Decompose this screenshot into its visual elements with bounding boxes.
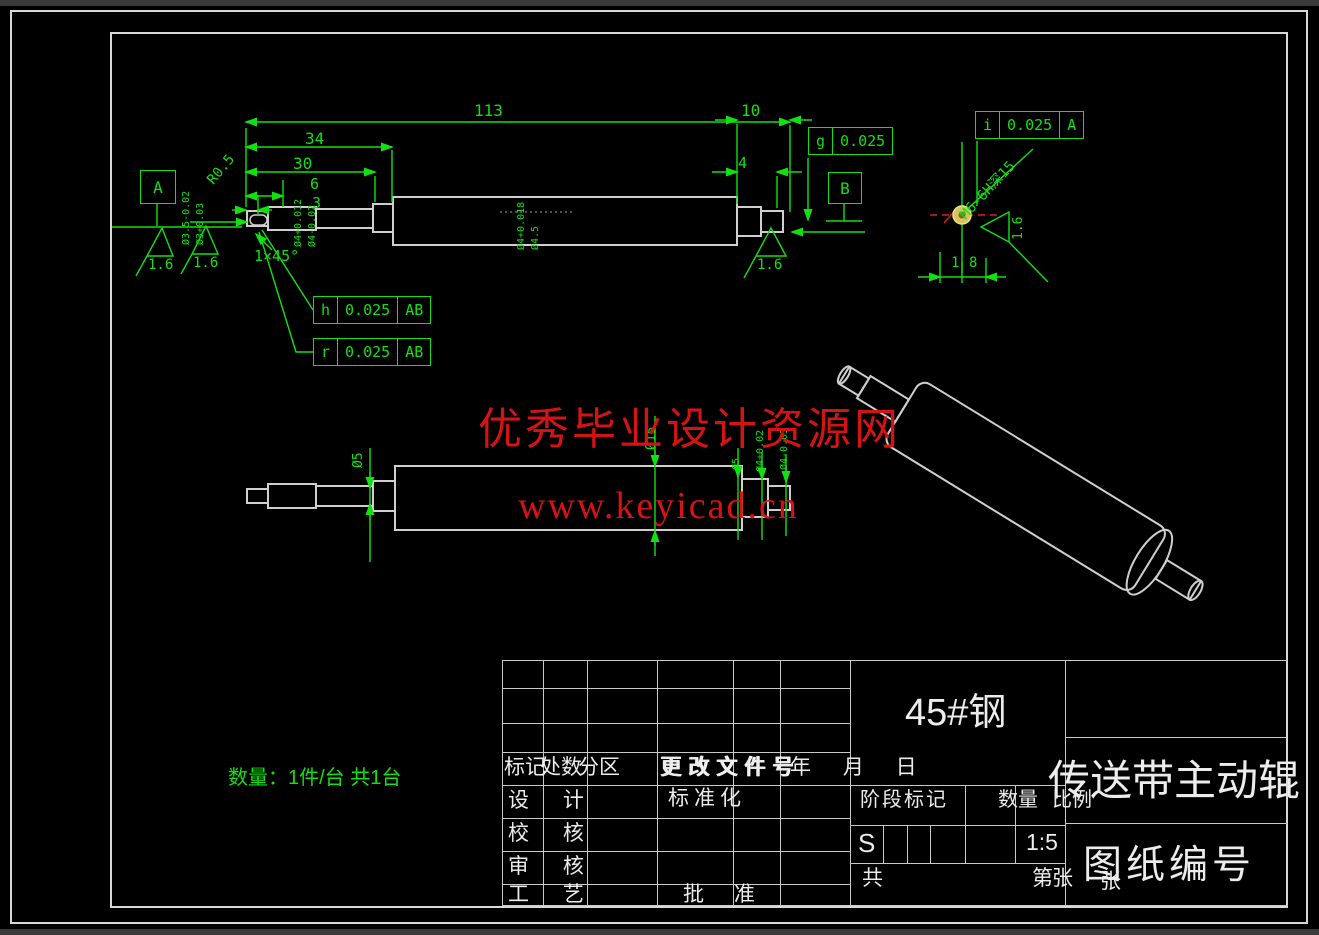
tb-review-label: 审 核	[508, 856, 598, 877]
cad-drawing-sheet: 113 34 30 6 3 10 4 R0.5 1×45° 1.6 1.6 1.…	[0, 0, 1319, 935]
fcf-h-tolerance: 0.025	[337, 297, 397, 323]
fcf-i-datum: A	[1059, 112, 1083, 138]
dim-dia-tv5: Ø4+0.018	[517, 202, 527, 250]
dim-18-digit1: 1	[951, 256, 959, 270]
tb-process-label: 工 艺	[508, 884, 598, 905]
tb-line	[883, 825, 884, 863]
isometric-view-outline	[821, 341, 1219, 624]
dim-dia-mv1: Ø5	[352, 452, 365, 468]
tb-zone-label: 分区	[578, 757, 620, 778]
tb-total-label: 共	[862, 868, 883, 889]
tb-check-label: 校 核	[508, 823, 598, 844]
fcf-r-tolerance: 0.025	[337, 339, 397, 365]
dim-113: 113	[474, 103, 503, 119]
dim-dia-tv4: Ø4-0.02	[308, 205, 318, 247]
tb-sheet-unit: 张	[1052, 868, 1073, 889]
fcf-r: r0.025AB	[313, 338, 431, 366]
dim-dia-tv2: Ø3+0.03	[196, 203, 206, 245]
dim-30: 30	[293, 156, 312, 172]
fcf-i-symbol: i	[976, 112, 999, 138]
fcf-g-tolerance: 0.025	[832, 128, 892, 154]
tb-stage-value: S	[858, 830, 875, 856]
tb-sheet-label: 第	[1032, 868, 1053, 889]
fcf-h: h0.025AB	[313, 296, 431, 324]
tb-line	[965, 785, 966, 863]
fcf-i-tolerance: 0.025	[999, 112, 1059, 138]
tb-line	[502, 688, 850, 689]
tb-line	[850, 660, 851, 905]
datum-a-box: A	[140, 170, 176, 204]
tb-stage-label: 阶段标记	[860, 790, 948, 810]
tb-approve-label: 批 准	[683, 884, 767, 905]
tb-line	[502, 660, 1288, 661]
tb-count-label: 处数	[540, 757, 582, 778]
fcf-r-datum: AB	[397, 339, 430, 365]
dim-dia-tv1: Ø3.5-0.02	[182, 191, 192, 245]
tb-line	[1065, 737, 1288, 738]
fcf-i: i0.025A	[975, 111, 1084, 139]
tb-line	[930, 825, 931, 863]
tb-line	[502, 905, 1288, 906]
quantity-note: 数量：1件/台 共1台	[228, 768, 401, 788]
tb-doc-label: 更改文件号	[660, 757, 800, 778]
dim-roughness-3: 1.6	[757, 258, 782, 272]
dim-4: 4	[738, 156, 747, 171]
fcf-h-symbol: h	[314, 297, 337, 323]
dim-18-digit2: 8	[969, 256, 977, 270]
tb-line	[657, 660, 658, 905]
tb-line	[502, 818, 850, 819]
dim-dia-mv3: Ø5	[732, 458, 742, 470]
watermark-line1: 优秀毕业设计资源网	[478, 408, 901, 452]
tb-material: 45#钢	[905, 694, 1006, 732]
tb-drawing-number: 图纸编号	[1083, 846, 1255, 885]
fcf-g-symbol: g	[809, 128, 832, 154]
dim-chamfer: 1×45°	[254, 249, 299, 264]
tb-line	[1065, 823, 1288, 824]
fcf-r-symbol: r	[314, 339, 337, 365]
dim-roughness-2: 1.6	[193, 256, 218, 270]
dim-10: 10	[741, 103, 760, 119]
top-view-outline	[247, 197, 783, 245]
tb-standard-label: 标准化	[668, 788, 746, 809]
tb-scale-value: 1:5	[1026, 831, 1058, 854]
dim-dia-tv6: Ø4.5	[531, 226, 541, 250]
tb-qty-label: 数量	[998, 790, 1038, 810]
tb-line	[733, 660, 734, 905]
dim-roughness-4: 1.6	[1012, 217, 1025, 240]
datum-b-box: B	[828, 172, 862, 204]
fcf-h-datum: AB	[397, 297, 430, 323]
tb-line	[907, 825, 908, 863]
tb-line	[502, 752, 850, 753]
tb-line	[780, 660, 781, 905]
tb-part-title: 传送带主动辊	[1048, 760, 1300, 802]
dim-6: 6	[310, 177, 319, 192]
dim-34: 34	[305, 131, 324, 147]
tb-line	[850, 863, 1065, 864]
dim-roughness-1: 1.6	[148, 258, 173, 272]
tb-design-label: 设 计	[508, 790, 598, 811]
tb-line	[502, 723, 850, 724]
tb-date-label: 年 月 日	[790, 757, 930, 778]
tb-line	[502, 660, 503, 905]
dim-dia-tv3: Ø4+0.012	[294, 199, 304, 247]
fcf-g: g0.025	[808, 127, 893, 155]
tb-line	[502, 851, 850, 852]
watermark-line2: www.keyicad.cn	[518, 487, 799, 525]
